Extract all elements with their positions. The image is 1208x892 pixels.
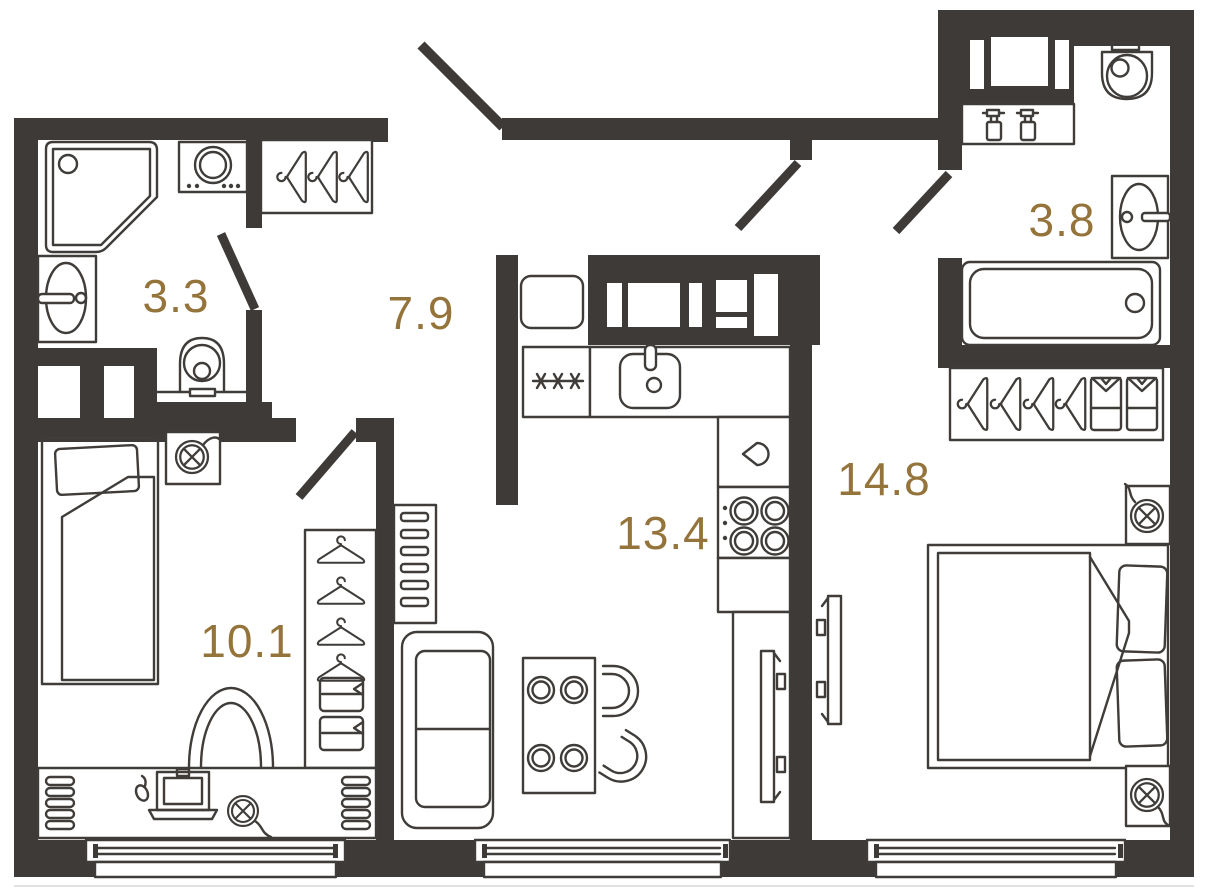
- wardrobe-hangers-shirts: [950, 368, 1163, 440]
- floor-plan: 3.3 7.9: [0, 0, 1208, 892]
- room-label-bathroom-2: 3.8: [1029, 194, 1096, 246]
- toilet: [1102, 42, 1152, 99]
- wardrobe-hangers-drawers: [305, 530, 376, 768]
- sofa: [402, 632, 493, 828]
- shelf-rack: [394, 505, 436, 623]
- window-bedroom-2: [867, 840, 1125, 877]
- chair-2: [599, 730, 655, 791]
- window-bedroom-1: [86, 840, 345, 877]
- tv: [817, 596, 841, 724]
- window-kitchen: [475, 840, 730, 877]
- shower: [46, 142, 157, 252]
- bathroom-2-door-leaf: [896, 174, 949, 231]
- room-label-bathroom-1: 3.3: [143, 270, 210, 322]
- room-bedroom-2: 14.8: [817, 453, 1170, 826]
- single-bed: [42, 438, 158, 684]
- double-bed: [928, 545, 1168, 768]
- stove: [718, 487, 790, 558]
- kitchen-counter-sink: [590, 345, 790, 417]
- nightstand-lamp-top: [1125, 484, 1170, 544]
- washing-machine: [179, 142, 247, 192]
- room-label-kitchen-living: 13.4: [616, 507, 710, 559]
- spray-bottles-shelf: [962, 104, 1074, 144]
- bathtub: [962, 262, 1160, 345]
- wall-lamp: [166, 432, 221, 484]
- kettle-counter: [718, 417, 790, 487]
- room-label-bedroom-2: 14.8: [837, 453, 931, 505]
- hanger-rack: [261, 140, 372, 213]
- fridge: [521, 276, 583, 328]
- hallway-corridor-door-leaf: [738, 163, 798, 228]
- desk: [38, 768, 376, 838]
- door-swings: [221, 45, 949, 497]
- chair: [189, 688, 273, 767]
- sink: [1112, 176, 1170, 258]
- room-kitchen-living: 13.4: [394, 345, 790, 838]
- room-hallway: 7.9: [261, 140, 583, 339]
- room-label-hallway: 7.9: [388, 287, 455, 339]
- floor-plan-svg: 3.3 7.9: [0, 0, 1208, 892]
- entrance-door-leaf: [421, 45, 503, 127]
- freezer-snowflakes: [523, 347, 590, 417]
- counter-lower: [718, 558, 790, 612]
- dining-table: [523, 658, 595, 793]
- room-bedroom-1: 10.1: [38, 432, 376, 838]
- windows: [14, 840, 1194, 886]
- toilet: [157, 338, 246, 396]
- bathroom-1-door-leaf: [221, 234, 255, 309]
- room-label-bedroom-1: 10.1: [200, 615, 294, 667]
- nightstand-lamp-bottom: [1126, 766, 1170, 826]
- chair-1: [603, 666, 638, 716]
- sink: [38, 256, 96, 342]
- bedroom-1-door-leaf: [299, 432, 355, 497]
